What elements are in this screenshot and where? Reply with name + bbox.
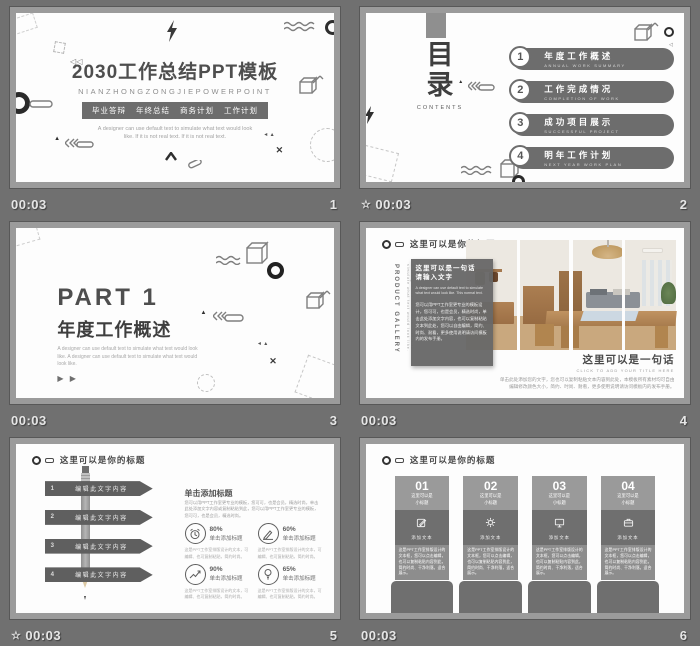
- toc-item-title: 工作完成情况: [544, 83, 674, 95]
- cover-title: 2030工作总结PPT模板: [16, 57, 334, 84]
- toc-item-number: 4: [509, 145, 531, 167]
- toc-item-subtitle: COMPLETION OF WORK: [544, 96, 674, 101]
- stat-item: 80% 单击添加标题 这是PPT工作室排版设计的文本，可编辑、也可复制粘贴，简约…: [185, 523, 252, 560]
- slide-1-elapsed-time: 00:03: [11, 197, 47, 212]
- squiggle-icon: [216, 255, 246, 265]
- toc-char: 目: [417, 40, 463, 70]
- edit-icon: [416, 517, 427, 528]
- toc-item[interactable]: 2 工作完成情况 COMPLETION OF WORK: [512, 81, 674, 103]
- x-doodle-icon: ✕: [276, 145, 284, 156]
- slide-cell-5: 这里可以是你的标题 1 编辑此文字内容 2 编辑此文字内容 3: [0, 431, 350, 646]
- overlay-title: 这里可以是一句话 请输入文字: [416, 264, 489, 284]
- caption-title: 这里可以是一句话: [500, 352, 675, 367]
- pencil-ferrule: [81, 473, 90, 482]
- banner-item[interactable]: 2 编辑此文字内容: [45, 510, 153, 525]
- overlay-text-box: 这里可以是一句话 请输入文字 A designer can use defaul…: [411, 259, 494, 366]
- monitor-icon: [554, 517, 565, 528]
- column-pedestal: [391, 581, 453, 613]
- toc-item-subtitle: ANNUAL WORK SUMMARY: [544, 63, 674, 68]
- ring-bullet-icon: [32, 456, 41, 465]
- column-number: 03: [532, 479, 587, 493]
- slide-4-number: 4: [680, 413, 687, 428]
- photo-chair: [535, 324, 554, 346]
- vertical-title: PRODUCT GALLERY: [393, 264, 399, 354]
- slide-2-number: 2: [680, 197, 687, 212]
- play-arrows-icon: ▶ ▶: [57, 374, 207, 383]
- column-top-band: 04 这里可以是 小标题: [601, 476, 656, 510]
- growth-chart-icon: [185, 564, 206, 585]
- column-item[interactable]: 02 这里可以是 小标题 添加文本 这是PPT工作室排版设计的文本框，您可以点击…: [463, 476, 518, 613]
- photo-table-leg: [655, 326, 668, 348]
- slide-3-elapsed-time: 00:03: [11, 413, 47, 428]
- slide-6-elapsed-time: 00:03: [361, 628, 397, 643]
- photo-lamp-cord: [607, 240, 609, 247]
- column-top-band: 02 这里可以是 小标题: [463, 476, 518, 510]
- column-paragraph: 这是PPT工作室排版设计的文本框，您可以点击编辑，也可以复制粘贴内容到此，简约时…: [395, 545, 450, 580]
- x-doodle-icon: ✕: [269, 356, 277, 367]
- overlay-chinese-text: 您可以用PPT工作室更专业的模板设计，您可可，也是会员，精选时尚，单击此处添加文…: [416, 302, 489, 344]
- tag-label: 毕业答辩: [92, 105, 126, 116]
- toc-item[interactable]: 3 成功项目展示 SUCCESSFUL PROJECT: [512, 114, 674, 136]
- photo-panel-gap: [517, 240, 520, 351]
- slide-5-pencil-infographic: 这里可以是你的标题 1 编辑此文字内容 2 编辑此文字内容 3: [16, 444, 334, 613]
- ring-bullet-icon: [382, 240, 391, 249]
- squiggle-icon: [284, 21, 318, 33]
- slide-4-elapsed-time: 00:03: [361, 413, 397, 428]
- banner-number: 3: [45, 543, 60, 549]
- toc-item-subtitle: NEXT YEAR WORK PLAN: [544, 162, 674, 167]
- toc-item-subtitle: SUCCESSFUL PROJECT: [544, 129, 674, 134]
- cube-pencil-icon: [305, 289, 331, 311]
- caret-doodle-icon: [165, 152, 177, 161]
- column-pedestal: [459, 581, 521, 613]
- photo-table-runner: [580, 311, 638, 321]
- transition-star-icon: ☆: [11, 629, 21, 642]
- stat-item: 65% 单击添加标题 这是PPT工作室排版设计的文本，可编辑、也可复制粘贴，简约…: [258, 564, 325, 601]
- toc-item-title: 成功项目展示: [544, 116, 674, 128]
- dashed-shape-icon: [366, 144, 399, 182]
- pencil-doodle-icon: [185, 160, 203, 174]
- slide-header: 这里可以是你的标题: [32, 454, 146, 466]
- banner-item[interactable]: 4 编辑此文字内容: [45, 567, 153, 582]
- banner-number: 1: [45, 486, 60, 492]
- photo-cushion: [590, 289, 607, 296]
- slide-cell-4: 这里可以是你的标题 PRODUCT GALLERY A designer can…: [350, 215, 700, 431]
- column-icon-label: 添加文本: [395, 535, 450, 541]
- photo-plant: [661, 282, 676, 304]
- light-bulb-icon: [258, 564, 279, 585]
- slide-cell-1: ◁◁ ▲ ✕ ◂ ▴ 2030工作总结PPT模板 NIANZHONGZONGJI…: [0, 0, 350, 215]
- slide-header-title: 这里可以是你的标题: [60, 454, 146, 466]
- slide-5-elapsed-time: ☆00:03: [11, 628, 61, 643]
- tag-label: 商务计划: [180, 105, 214, 116]
- slide-header-title: 这里可以是你的标题: [410, 454, 496, 466]
- banner-number: 4: [45, 572, 60, 578]
- section-title: 年度工作概述: [57, 316, 207, 342]
- slide-3-number: 3: [330, 413, 337, 428]
- toc-title-block: 目 录 CONTENTS: [417, 40, 463, 110]
- stat-percent: 80%: [210, 526, 243, 533]
- stat-percent: 90%: [210, 566, 243, 573]
- gear-icon: [485, 517, 496, 528]
- slide-header: 这里可以是你的标题: [382, 454, 496, 466]
- stat-label: 单击添加标题: [210, 534, 243, 542]
- slide-6-columns: 这里可以是你的标题 01 这里可以是 小标题 添加文本 这是PPT工: [366, 444, 684, 613]
- column-icon-label: 添加文本: [601, 535, 656, 541]
- slide-cell-6: 这里可以是你的标题 01 这里可以是 小标题 添加文本 这是PPT工: [350, 431, 700, 646]
- banner-item[interactable]: 3 编辑此文字内容: [45, 539, 153, 554]
- briefcase-icon: [623, 517, 634, 528]
- column-icon-band: 添加文本: [601, 510, 656, 545]
- toc-item-number: 3: [509, 112, 531, 134]
- bold-ring-icon: [267, 262, 284, 279]
- toc-item-title: 明年工作计划: [544, 149, 674, 161]
- section-body-text: A designer can use default text to simul…: [57, 346, 207, 369]
- column-pedestal: [528, 581, 590, 613]
- overlay-english-text: A designer can use default text to simul…: [416, 286, 489, 297]
- banner-number: 2: [45, 514, 60, 520]
- column-number: 04: [601, 479, 656, 493]
- dashed-shape-icon: [294, 354, 334, 398]
- caption-subtitle: CLICK TO ADD YOUR TITLE HERE: [500, 368, 675, 373]
- right-heading: 单击添加标题: [185, 488, 233, 499]
- column-top-band: 01 这里可以是 小标题: [395, 476, 450, 510]
- pencil-shaft: [81, 482, 90, 577]
- column-icon-band: 添加文本: [463, 510, 518, 545]
- toc-item[interactable]: 4 明年工作计划 NEXT YEAR WORK PLAN: [512, 147, 674, 169]
- slide-thumbnail-grid: ◁◁ ▲ ✕ ◂ ▴ 2030工作总结PPT模板 NIANZHONGZONGJI…: [0, 0, 700, 646]
- banner-label: 编辑此文字内容: [60, 484, 153, 493]
- slide-1-number: 1: [330, 197, 337, 212]
- lightning-bolt-icon: [165, 20, 179, 42]
- right-paragraph: 您可以用PPT工作室更专业的模板，您可可，也是会员，精选时尚，单击此处添加文字内…: [185, 500, 322, 520]
- cover-tag-bar: 毕业答辩 年终总结 商务计划 工作计划: [82, 102, 268, 119]
- stat-item: 60% 单击添加标题 这是PPT工作室排版设计的文本，可编辑、也可复制粘贴，简约…: [258, 523, 325, 560]
- cover-subtitle: NIANZHONGZONGJIEPOWERPOINT: [16, 87, 334, 96]
- slide-4-gallery: 这里可以是你的标题 PRODUCT GALLERY A designer can…: [366, 228, 684, 398]
- column-icon-label: 添加文本: [463, 535, 518, 541]
- slide-thumbnail-2[interactable]: ◁ ▲ 目 录 CONTENTS 1 年度工作概述 ANNUAL: [359, 6, 691, 189]
- small-arrows-icon: ◂ ▴: [258, 340, 267, 347]
- ring-bullet-icon: [382, 456, 391, 465]
- pencil-cap: [82, 466, 89, 473]
- toc-item-title: 年度工作概述: [544, 50, 674, 62]
- toc-item-number: 2: [509, 79, 531, 101]
- stat-description: 这是PPT工作室排版设计的文本，可编辑、也可复制粘贴，简约时尚。: [258, 547, 325, 560]
- column-item[interactable]: 04 这里可以是 小标题 添加文本 这是PPT工作室排版设计的文本框，您可以点击…: [601, 476, 656, 613]
- stat-label: 单击添加标题: [210, 574, 243, 582]
- column-paragraph: 这是PPT工作室排版设计的文本框，您可以点击编辑，也可以复制粘贴内容到此，简约时…: [601, 545, 656, 580]
- stat-description: 这是PPT工作室排版设计的文本，可编辑、也可复制粘贴，简约时尚。: [185, 588, 252, 601]
- gray-rect-decor: [426, 13, 446, 38]
- dashed-shape-icon: [16, 13, 38, 36]
- photo-rattan-lamp: [592, 245, 623, 258]
- squiggle-icon: [461, 165, 495, 175]
- cube-doodle-icon: [245, 240, 273, 266]
- column-paragraph: 这是PPT工作室排版设计的文本框，您可以点击编辑，也可以复制粘贴内容到此，简约时…: [463, 545, 518, 580]
- section-title-block: PART 1 年度工作概述 A designer can use default…: [57, 284, 207, 383]
- arrow-chevrons-icon: [213, 311, 245, 323]
- banner-label: 编辑此文字内容: [60, 570, 153, 579]
- column-item[interactable]: 01 这里可以是 小标题 添加文本 这是PPT工作室排版设计的文本框，您可以点击…: [395, 476, 450, 613]
- section-part-label: PART 1: [57, 284, 207, 312]
- slide-5-number: 5: [330, 628, 337, 643]
- slide-thumbnail-1[interactable]: ◁◁ ▲ ✕ ◂ ▴ 2030工作总结PPT模板 NIANZHONGZONGJI…: [9, 6, 341, 189]
- slide-6-number: 6: [680, 628, 687, 643]
- stat-item: 90% 单击添加标题 这是PPT工作室排版设计的文本，可编辑、也可复制粘贴，简约…: [185, 564, 252, 601]
- stat-percent: 60%: [283, 526, 316, 533]
- dash-bullet-icon: [395, 458, 404, 463]
- banner-label: 编辑此文字内容: [60, 513, 153, 522]
- photo-ceiling-light: [642, 248, 663, 254]
- stat-description: 这是PPT工作室排版设计的文本，可编辑、也可复制粘贴，简约时尚。: [258, 588, 325, 601]
- slide-thumbnail-4[interactable]: 这里可以是你的标题 PRODUCT GALLERY A designer can…: [359, 221, 691, 405]
- slide-cell-3: ▲ ◂ ▴ ✕ PART 1 年度工作概述 A designer can use…: [0, 215, 350, 431]
- banner-label: 编辑此文字内容: [60, 542, 153, 551]
- slide-3-section: ▲ ◂ ▴ ✕ PART 1 年度工作概述 A designer can use…: [16, 228, 334, 398]
- transition-star-icon: ☆: [361, 198, 371, 211]
- dash-bullet-icon: [45, 458, 54, 463]
- column-paragraph: 这是PPT工作室排版设计的文本框，您可以点击编辑，也可以复制粘贴内容到此，简约时…: [532, 545, 587, 580]
- slide-thumbnail-5[interactable]: 这里可以是你的标题 1 编辑此文字内容 2 编辑此文字内容 3: [9, 437, 341, 620]
- toc-char: 录: [417, 70, 463, 100]
- chevron-doodle-icon: ◁: [669, 42, 673, 48]
- cover-text-block: 2030工作总结PPT模板 NIANZHONGZONGJIEPOWERPOINT…: [16, 57, 334, 142]
- interior-photo: [466, 240, 676, 351]
- column-item[interactable]: 03 这里可以是 小标题 添加文本 这是PPT工作室排版设计的文本框，您可以点击…: [532, 476, 587, 613]
- toc-subtitle: CONTENTS: [417, 105, 463, 111]
- cover-body-text: A designer can use default text to simul…: [16, 125, 334, 142]
- ring-doodle-icon: [664, 27, 674, 37]
- column-pedestal: [597, 581, 659, 613]
- writing-hand-icon: [258, 523, 279, 544]
- dash-bullet-icon: [395, 242, 404, 247]
- dashed-shape-icon: [16, 228, 40, 248]
- stat-percent: 65%: [283, 566, 316, 573]
- pencil-lead: [84, 596, 86, 600]
- caption-body-text: 单击此处添加您的文字，您也可以复制粘贴文本内容到此处，本模板所有素材均可自由编辑…: [500, 376, 675, 391]
- slide-2-elapsed-time: ☆00:03: [361, 197, 411, 212]
- slide-thumbnail-6[interactable]: 这里可以是你的标题 01 这里可以是 小标题 添加文本 这是PPT工: [359, 437, 691, 620]
- lightning-bolt-icon: [366, 106, 375, 124]
- tag-label: 工作计划: [224, 105, 258, 116]
- toc-item-number: 1: [509, 46, 531, 68]
- slide-thumbnail-3[interactable]: ▲ ◂ ▴ ✕ PART 1 年度工作概述 A designer can use…: [9, 221, 341, 405]
- photo-panel-gap: [569, 240, 572, 351]
- stat-label: 单击添加标题: [283, 534, 316, 542]
- column-icon-label: 添加文本: [532, 535, 587, 541]
- dashed-square-icon: [53, 41, 66, 54]
- tag-label: 年终总结: [136, 105, 170, 116]
- banner-item[interactable]: 1 编辑此文字内容: [45, 481, 153, 496]
- ring-doodle-icon: [325, 20, 334, 35]
- toc-item[interactable]: 1 年度工作概述 ANNUAL WORK SUMMARY: [512, 48, 674, 70]
- toc-item-list: 1 年度工作概述 ANNUAL WORK SUMMARY 2 工作完成情况 CO…: [512, 48, 674, 180]
- column-group: 01 这里可以是 小标题 添加文本 这是PPT工作室排版设计的文本框，您可以点击…: [395, 476, 656, 613]
- slide-cell-2: ◁ ▲ 目 录 CONTENTS 1 年度工作概述 ANNUAL: [350, 0, 700, 215]
- slide-1-cover: ◁◁ ▲ ✕ ◂ ▴ 2030工作总结PPT模板 NIANZHONGZONGJI…: [16, 13, 334, 182]
- cube-pencil-icon: [633, 21, 659, 43]
- column-icon-band: 添加文本: [532, 510, 587, 545]
- caption-block: 这里可以是一句话 CLICK TO ADD YOUR TITLE HERE 单击…: [500, 352, 675, 391]
- stat-description: 这是PPT工作室排版设计的文本，可编辑、也可复制粘贴，简约时尚。: [185, 547, 252, 560]
- alarm-clock-icon: [185, 523, 206, 544]
- stat-label: 单击添加标题: [283, 574, 316, 582]
- photo-panel-gap: [622, 240, 625, 351]
- arrow-chevrons-icon: [468, 81, 496, 92]
- slide-2-contents: ◁ ▲ 目 录 CONTENTS 1 年度工作概述 ANNUAL: [366, 13, 684, 182]
- column-icon-band: 添加文本: [395, 510, 450, 545]
- column-number: 02: [463, 479, 518, 493]
- column-top-band: 03 这里可以是 小标题: [532, 476, 587, 510]
- column-number: 01: [395, 479, 450, 493]
